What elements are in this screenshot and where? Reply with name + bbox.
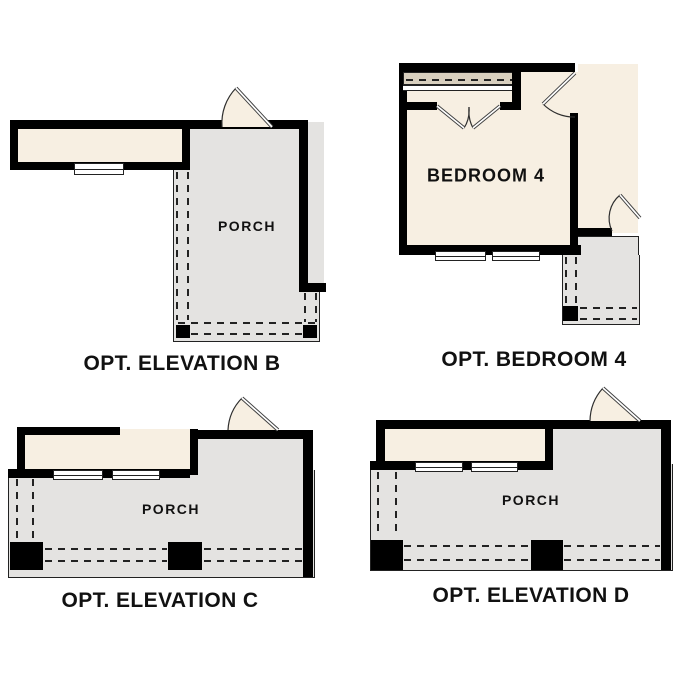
wall: [661, 420, 671, 570]
window-symbol: [415, 462, 463, 472]
porch-edge-dashed: [404, 559, 530, 561]
plan-elevation-d: PORCH OPT. ELEVATION D: [0, 0, 687, 687]
floorplan-sheet: PORCH OPT. ELEVATION B BEDROOM 4: [0, 0, 687, 687]
wall: [376, 420, 385, 461]
porch-post: [371, 540, 403, 570]
room-interior: [385, 429, 545, 461]
porch-post: [531, 540, 563, 570]
window-symbol: [471, 462, 518, 472]
porch-edge-dashed: [564, 545, 660, 547]
porch-slab: [370, 464, 673, 571]
porch-edge-dashed: [377, 472, 379, 536]
wall: [376, 420, 671, 429]
plan-caption: OPT. ELEVATION D: [433, 584, 630, 608]
porch-edge-dashed: [395, 472, 397, 536]
room-label-porch: PORCH: [502, 492, 560, 508]
porch-edge-dashed: [404, 545, 530, 547]
porch-edge-dashed: [564, 559, 660, 561]
porch-slab-upper: [553, 429, 661, 464]
